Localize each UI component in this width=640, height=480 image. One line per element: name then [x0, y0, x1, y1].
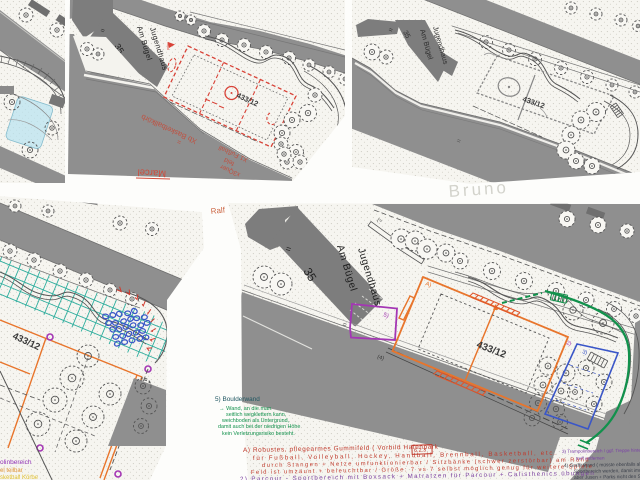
svg-text:Ralf: Ralf	[210, 205, 226, 216]
svg-text:treff entfernen: treff entfernen	[576, 455, 605, 461]
svg-text:kein Verletzungsrisiko besteh: kein Verletzungsrisiko besteht.	[222, 431, 295, 437]
svg-text:6.2.3: 6.2.3	[414, 448, 426, 454]
svg-text:el teilbar: el teilbar	[0, 468, 23, 474]
svg-text:sketball Körbe: sketball Körbe	[0, 475, 39, 480]
svg-text:Marcel: Marcel	[137, 166, 166, 178]
svg-text:damit auch bei der niedrigen H: damit auch bei der niedrigen Höhe	[218, 424, 300, 430]
svg-text:5) Boulderwand: 5) Boulderwand	[215, 396, 260, 403]
svg-text:olinbereich: olinbereich	[0, 459, 32, 466]
